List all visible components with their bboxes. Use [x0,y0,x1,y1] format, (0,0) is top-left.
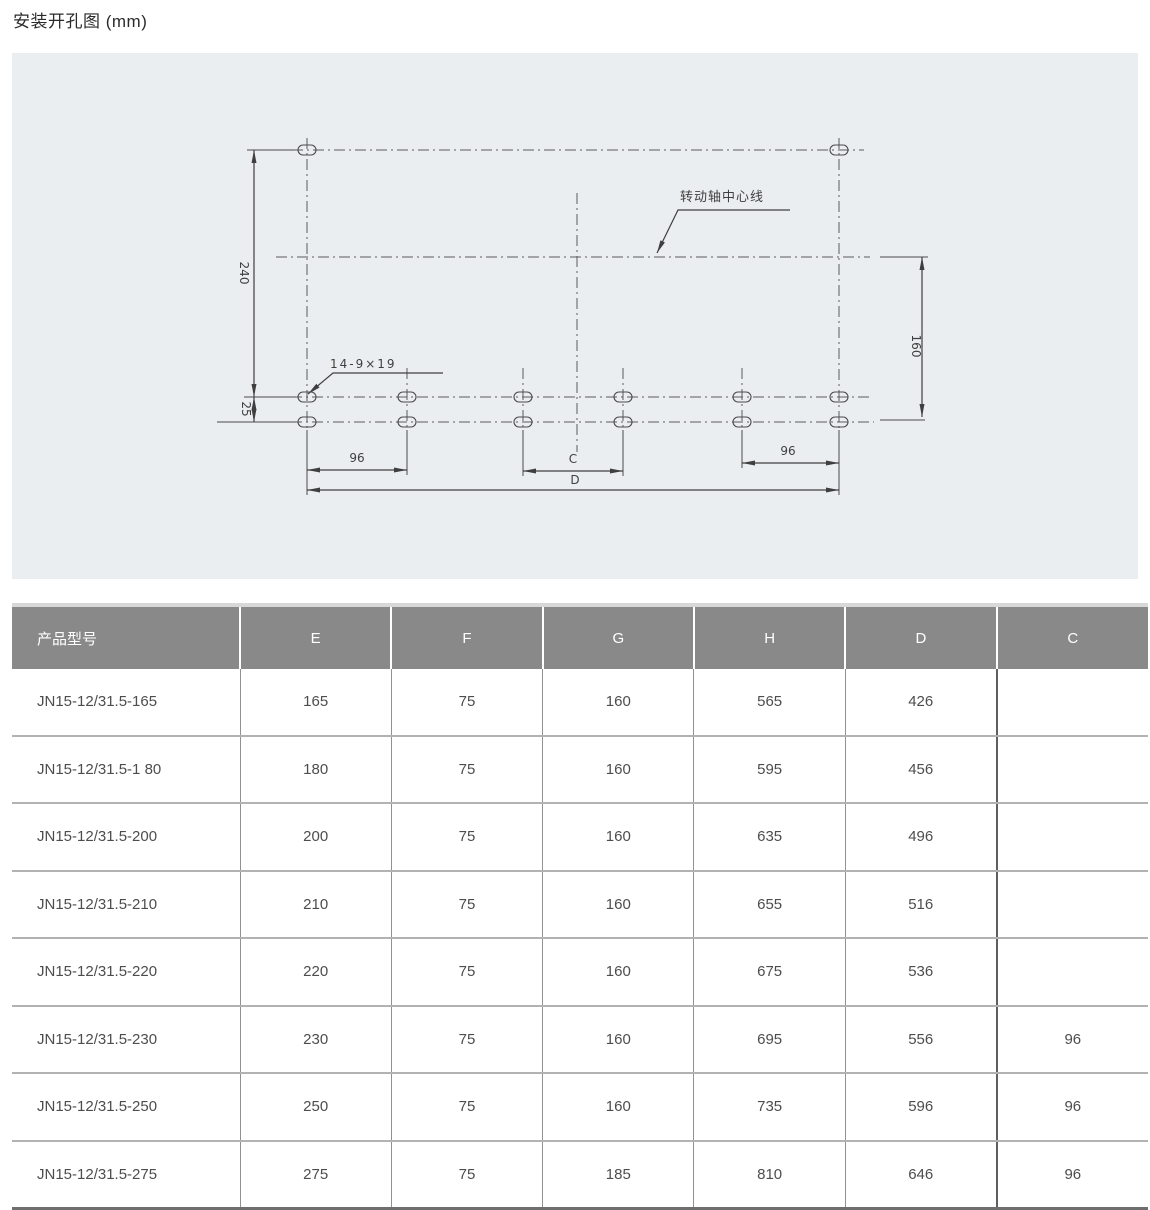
cell-c [997,736,1148,804]
cell-c [997,803,1148,871]
cell-f: 75 [391,736,542,804]
page-title: 安装开孔图 (mm) [13,7,147,32]
cell-f: 75 [391,1141,542,1209]
cell-e: 250 [240,1073,391,1141]
cell-e: 220 [240,938,391,1006]
cell-model: JN15-12/31.5-200 [12,803,240,871]
cell-model: JN15-12/31.5-230 [12,1006,240,1074]
axis-note-leader [657,210,790,253]
cell-e: 180 [240,736,391,804]
cell-d: 516 [845,871,996,939]
axis-note-label: 转动轴中心线 [680,190,764,205]
mounting-holes [298,145,848,427]
cell-d: 556 [845,1006,996,1074]
dim-label-25: 25 [239,401,253,416]
cell-d: 596 [845,1073,996,1141]
cell-model: JN15-12/31.5-250 [12,1073,240,1141]
cell-c: 96 [997,1073,1148,1141]
col-header-g: G [543,605,694,669]
cell-c [997,938,1148,1006]
cell-g: 160 [543,871,694,939]
table-row: JN15-12/31.5-220 220 75 160 675 536 [12,938,1148,1006]
cell-c [997,871,1148,939]
cell-f: 75 [391,1006,542,1074]
cell-e: 210 [240,871,391,939]
dim-label-96-left: 96 [349,451,364,465]
table-row: JN15-12/31.5-210 210 75 160 655 516 [12,871,1148,939]
cell-f: 75 [391,669,542,736]
hole-spec-label: 14-9×19 [330,357,397,371]
table-row: JN15-12/31.5-1 80 180 75 160 595 456 [12,736,1148,804]
cell-h: 595 [694,736,845,804]
cell-e: 230 [240,1006,391,1074]
cell-f: 75 [391,938,542,1006]
spec-table: 产品型号 E F G H D C JN15-12/31.5-165 165 75… [12,603,1148,1210]
dim-label-240: 240 [237,262,251,285]
col-header-f: F [391,605,542,669]
cell-model: JN15-12/31.5-275 [12,1141,240,1209]
extension-lines [217,150,928,495]
cell-model: JN15-12/31.5-220 [12,938,240,1006]
cell-f: 75 [391,871,542,939]
cell-f: 75 [391,803,542,871]
table-row: JN15-12/31.5-230 230 75 160 695 556 96 [12,1006,1148,1074]
cell-d: 536 [845,938,996,1006]
col-header-d: D [845,605,996,669]
table-row: JN15-12/31.5-250 250 75 160 735 596 96 [12,1073,1148,1141]
cell-h: 675 [694,938,845,1006]
cell-g: 160 [543,669,694,736]
table-row: JN15-12/31.5-200 200 75 160 635 496 [12,803,1148,871]
cell-e: 275 [240,1141,391,1209]
centerlines [270,138,874,452]
col-header-e: E [240,605,391,669]
dim-label-d: D [570,473,579,487]
col-header-model: 产品型号 [12,605,240,669]
cell-model: JN15-12/31.5-210 [12,871,240,939]
dim-label-c: C [569,452,577,466]
cell-c: 96 [997,1141,1148,1209]
col-header-h: H [694,605,845,669]
cell-g: 160 [543,736,694,804]
cell-c [997,669,1148,736]
cell-h: 655 [694,871,845,939]
cell-c: 96 [997,1006,1148,1074]
hole-spec-leader [308,373,443,394]
cell-h: 635 [694,803,845,871]
table-header-row: 产品型号 E F G H D C [12,605,1148,669]
cell-e: 165 [240,669,391,736]
cell-d: 426 [845,669,996,736]
dim-label-160: 160 [909,335,923,358]
dimension-lines [254,150,922,490]
cell-d: 646 [845,1141,996,1209]
cell-g: 185 [543,1141,694,1209]
installation-hole-diagram: 240 25 160 96 C 96 D 14-9×19 转动轴中心线 [12,53,1138,579]
drawing-panel: 240 25 160 96 C 96 D 14-9×19 转动轴中心线 [12,53,1138,579]
table-row: JN15-12/31.5-165 165 75 160 565 426 [12,669,1148,736]
cell-g: 160 [543,1006,694,1074]
cell-g: 160 [543,803,694,871]
cell-e: 200 [240,803,391,871]
cell-h: 810 [694,1141,845,1209]
cell-model: JN15-12/31.5-165 [12,669,240,736]
cell-g: 160 [543,938,694,1006]
cell-h: 565 [694,669,845,736]
cell-f: 75 [391,1073,542,1141]
cell-h: 695 [694,1006,845,1074]
table-row: JN15-12/31.5-275 275 75 185 810 646 96 [12,1141,1148,1209]
cell-model: JN15-12/31.5-1 80 [12,736,240,804]
dim-label-96-right: 96 [780,444,795,458]
cell-g: 160 [543,1073,694,1141]
cell-d: 496 [845,803,996,871]
col-header-c: C [997,605,1148,669]
cell-d: 456 [845,736,996,804]
cell-h: 735 [694,1073,845,1141]
